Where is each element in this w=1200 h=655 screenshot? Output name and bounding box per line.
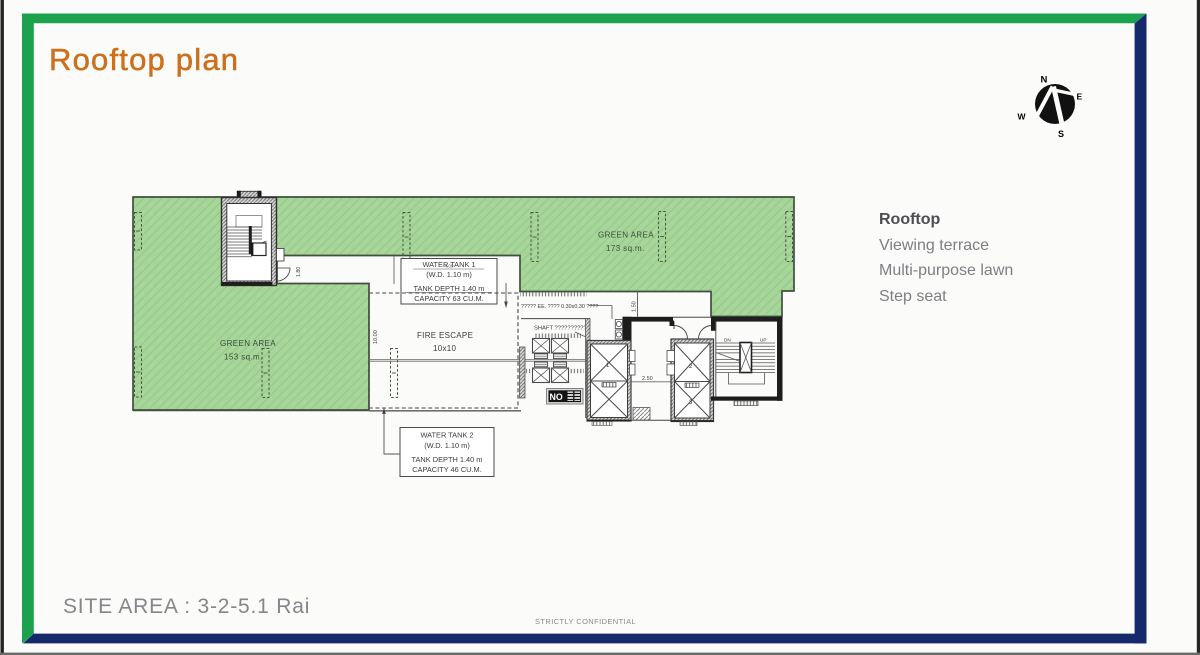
svg-text:SHAFT ??????????: SHAFT ?????????? [534,326,588,332]
svg-text:GREEN AREA: GREEN AREA [220,339,276,348]
svg-text:(W.D. 1.10 m): (W.D. 1.10 m) [426,270,472,279]
svg-text:E: E [1077,92,1083,102]
svg-text:FIRE ESCAPE: FIRE ESCAPE [417,331,473,340]
svg-text:1.80: 1.80 [296,267,302,277]
svg-text:TANK DEPTH 1.40 m: TANK DEPTH 1.40 m [414,284,485,293]
svg-text:S: S [1058,129,1064,139]
svg-text:????? EE. ???? 0.30x0.30 ????: ????? EE. ???? 0.30x0.30 ???? [521,304,598,310]
svg-text:2.50: 2.50 [642,376,653,382]
svg-text:W: W [1018,112,1027,122]
svg-text:WATER TANK 2: WATER TANK 2 [420,431,473,440]
svg-text:1.50: 1.50 [632,301,638,312]
svg-text:CAPACITY 46 CU.M.: CAPACITY 46 CU.M. [412,465,482,474]
svg-text:DN: DN [724,338,731,343]
svg-text:10.00: 10.00 [373,330,379,344]
svg-text:UP: UP [760,338,766,343]
svg-text:153 sq.m.: 153 sq.m. [224,353,263,362]
svg-text:4.00: 4.00 [445,264,454,269]
svg-text:173 sq.m.: 173 sq.m. [606,244,645,253]
svg-text:N: N [1041,75,1048,86]
svg-text:CAPACITY 63 CU.M.: CAPACITY 63 CU.M. [414,294,484,303]
svg-text:NO: NO [550,392,563,402]
svg-text:10x10: 10x10 [433,344,457,353]
svg-text:(W.D. 1.10 m): (W.D. 1.10 m) [424,441,470,450]
svg-text:TANK DEPTH 1.40 m: TANK DEPTH 1.40 m [412,455,483,464]
svg-text:GREEN AREA: GREEN AREA [598,231,654,240]
